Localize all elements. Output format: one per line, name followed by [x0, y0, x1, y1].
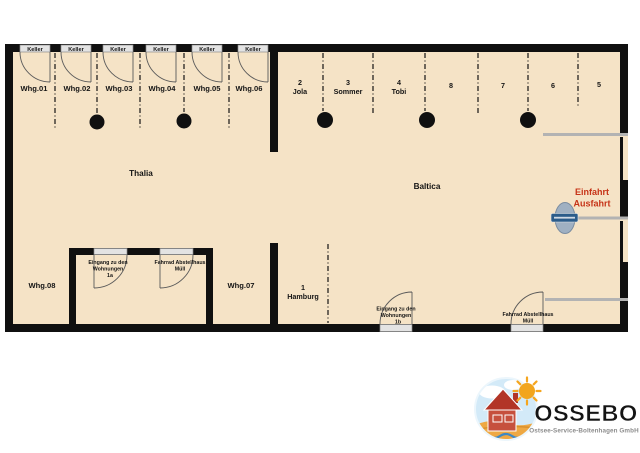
- parking-2-name: Jola: [293, 87, 308, 96]
- bike-shed-left-line2: Müll: [175, 267, 186, 273]
- parking-4-name: Tobi: [392, 87, 407, 96]
- gate-label-ausfahrt: Ausfahrt: [573, 199, 610, 209]
- parking-6-number: 6: [551, 81, 555, 90]
- apartment-label-whg02: Whg.02: [63, 84, 90, 93]
- parking-3-number: 3: [346, 78, 350, 87]
- entrance-1b-line1: Eingang zu den: [376, 307, 415, 313]
- parking-7-number: 7: [501, 81, 505, 90]
- parking-2-number: 2: [298, 78, 302, 87]
- bike-shed-left-line1: Fahrrad Abstellhaus: [154, 260, 205, 266]
- bike-shed-right-line1: Fahrrad Abstellhaus: [502, 312, 553, 318]
- brand-name: OSSEBO: [534, 400, 638, 426]
- entrance-1a-line2: Wohnungen: [93, 267, 124, 273]
- keller-label: Keller: [245, 47, 261, 53]
- keller-label: Keller: [199, 47, 215, 53]
- brand-subtitle: Ostsee-Service-Boltenhagen GmbH: [529, 428, 639, 435]
- divider-wall-top: [270, 44, 278, 152]
- parking-4-number: 4: [397, 78, 401, 87]
- divider-wall-bottom: [270, 243, 278, 332]
- gate-label-einfahrt: Einfahrt: [575, 187, 609, 197]
- apartment-label-whg05: Whg.05: [193, 84, 221, 93]
- entrance-1a-line3: 1a: [107, 273, 113, 279]
- floor-area: [5, 44, 628, 332]
- entrance-1b-line3: 1b: [395, 320, 402, 326]
- keller-label: Keller: [27, 47, 43, 53]
- entrance-1a-line1: Eingang zu den: [88, 260, 127, 266]
- parking-1-number: 1: [301, 283, 305, 292]
- company-logo: OSSEBO Ostsee-Service-Boltenhagen GmbH: [475, 378, 639, 445]
- apartment-label-whg01: Whg.01: [20, 84, 48, 93]
- building-name-baltica: Baltica: [414, 182, 441, 191]
- apartment-label-whg07: Whg.07: [227, 281, 254, 290]
- gate-bar-highlight: [554, 217, 575, 219]
- entrance-1b-line2: Wohnungen: [381, 313, 412, 319]
- bike-shed-right-line2: Müll: [523, 319, 534, 325]
- apartment-label-whg03: Whg.03: [105, 84, 132, 93]
- keller-label: Keller: [110, 47, 126, 53]
- floor-plan: Keller Keller Keller Keller Keller Kelle…: [0, 0, 640, 453]
- apartment-label-whg08: Whg.08: [28, 281, 55, 290]
- apartment-label-whg04: Whg.04: [148, 84, 176, 93]
- parking-5-number: 5: [597, 80, 601, 89]
- apartment-label-whg06: Whg.06: [235, 84, 262, 93]
- parking-3-name: Sommer: [334, 87, 363, 96]
- sun-icon: [519, 383, 535, 399]
- parking-1-name: Hamburg: [287, 292, 319, 301]
- keller-label: Keller: [153, 47, 169, 53]
- building-name-thalia: Thalia: [129, 169, 153, 178]
- parking-8-number: 8: [449, 81, 453, 90]
- keller-label: Keller: [68, 47, 84, 53]
- floor-plan-page: Keller Keller Keller Keller Keller Kelle…: [0, 0, 640, 453]
